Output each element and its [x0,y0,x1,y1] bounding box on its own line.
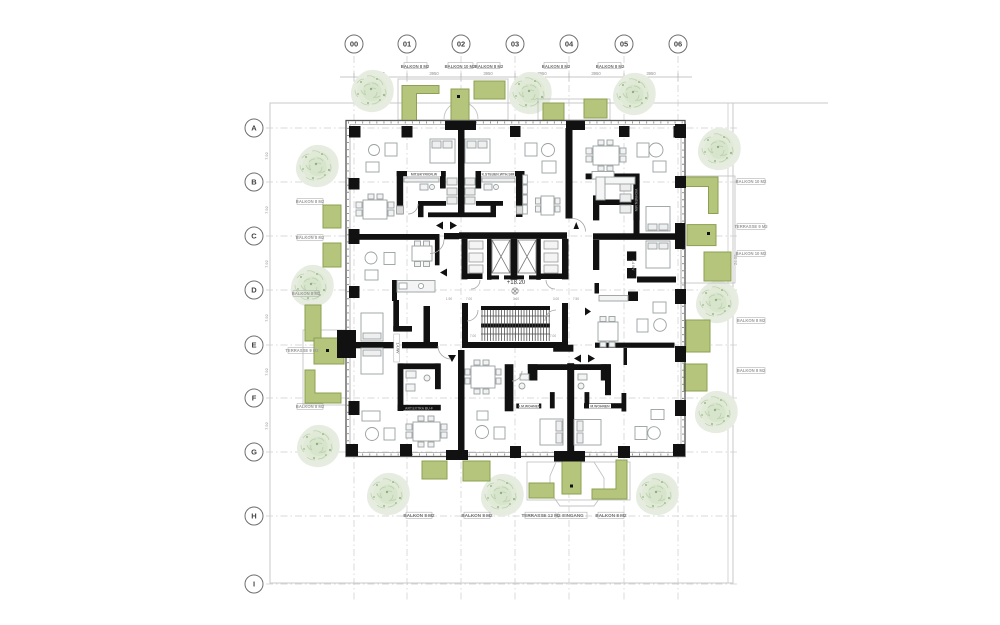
svg-text:1.90: 1.90 [446,297,452,301]
svg-text:7.00: 7.00 [550,334,556,338]
svg-text:BALKON 8 M2: BALKON 8 M2 [296,199,325,204]
svg-text:H: H [251,512,256,521]
svg-text:BALKON 8 M2: BALKON 8 M2 [296,404,325,409]
svg-text:3950: 3950 [646,71,656,76]
svg-text:7.92: 7.92 [264,259,269,268]
svg-text:BALKON 8 M2: BALKON 8 M2 [596,64,625,69]
svg-text:BALKON 10 M2: BALKON 10 M2 [736,251,767,256]
svg-text:G: G [251,448,257,457]
svg-text:BALKON 8 M2: BALKON 8 M2 [296,235,325,240]
svg-text:MIT.BKYRION.W: MIT.BKYRION.W [411,172,438,176]
svg-text:B: B [251,178,257,187]
svg-text:7.92: 7.92 [264,367,269,376]
svg-text:3950: 3950 [483,71,493,76]
svg-text:06: 06 [674,40,682,49]
svg-text:00: 00 [350,40,358,49]
svg-text:05: 05 [620,40,628,49]
svg-text:7.50: 7.50 [573,297,579,301]
svg-text:BALKON 8 M2: BALKON 8 M2 [401,64,430,69]
svg-text:BALKON 8 M2: BALKON 8 M2 [403,513,435,518]
svg-text:M.WOHNEN: M.WOHNEN [590,404,610,408]
svg-text:WOHNEN.MIN: WOHNEN.MIN [634,189,638,212]
svg-text:BALKON 8 M2: BALKON 8 M2 [475,64,504,69]
svg-text:04: 04 [565,40,574,49]
svg-text:BALKON 8 M2: BALKON 8 M2 [595,513,627,518]
svg-text:C: C [251,232,257,241]
svg-text:A: A [251,124,257,133]
svg-text:7.92: 7.92 [264,151,269,160]
svg-text:BALKON 8 M2: BALKON 8 M2 [461,513,493,518]
svg-text:F: F [252,394,257,403]
svg-text:ART.EXTRA BU-F: ART.EXTRA BU-F [405,406,433,410]
svg-text:3.60: 3.60 [513,297,519,301]
svg-text:3.00: 3.00 [553,297,559,301]
svg-text:EINGANG: EINGANG [562,513,584,518]
svg-text:3950: 3950 [429,71,439,76]
svg-text:TERRASSE 9 M2: TERRASSE 9 M2 [285,348,319,353]
svg-text:01: 01 [403,40,411,49]
svg-text:7.00: 7.00 [470,334,476,338]
svg-text:7.92: 7.92 [264,205,269,214]
svg-text:7.92: 7.92 [264,421,269,430]
svg-text:7.00: 7.00 [466,297,472,301]
svg-text:03: 03 [511,40,519,49]
svg-text:1.4.WV: 1.4.WV [396,342,400,354]
svg-text:A.M.WOHNEN: A.M.WOHNEN [518,404,541,408]
svg-text:TERRASSE 12 M2: TERRASSE 12 M2 [521,513,561,518]
svg-text:1.4 WV: 1.4 WV [631,259,635,271]
svg-text:BALKON 10 M2: BALKON 10 M2 [445,64,476,69]
svg-text:BALKON 8 M2: BALKON 8 M2 [737,368,766,373]
svg-text:BALKON 8 M2: BALKON 8 M2 [292,291,321,296]
svg-text:E: E [251,341,256,350]
svg-text:BALKON 8 M2: BALKON 8 M2 [542,64,571,69]
svg-text:7.92: 7.92 [264,313,269,322]
svg-text:3950: 3950 [591,71,601,76]
svg-text:D: D [251,286,257,295]
svg-text:TERRASSE 9 M2: TERRASSE 9 M2 [734,224,768,229]
svg-text:BALKON 8 M2: BALKON 8 M2 [737,318,766,323]
svg-text:K.STEUEN.WTH.SIM: K.STEUEN.WTH.SIM [482,172,515,176]
svg-text:I: I [253,580,255,589]
svg-text:+18.20: +18.20 [507,280,526,286]
svg-text:BALKON 10 M2: BALKON 10 M2 [736,179,767,184]
svg-text:02: 02 [457,40,465,49]
